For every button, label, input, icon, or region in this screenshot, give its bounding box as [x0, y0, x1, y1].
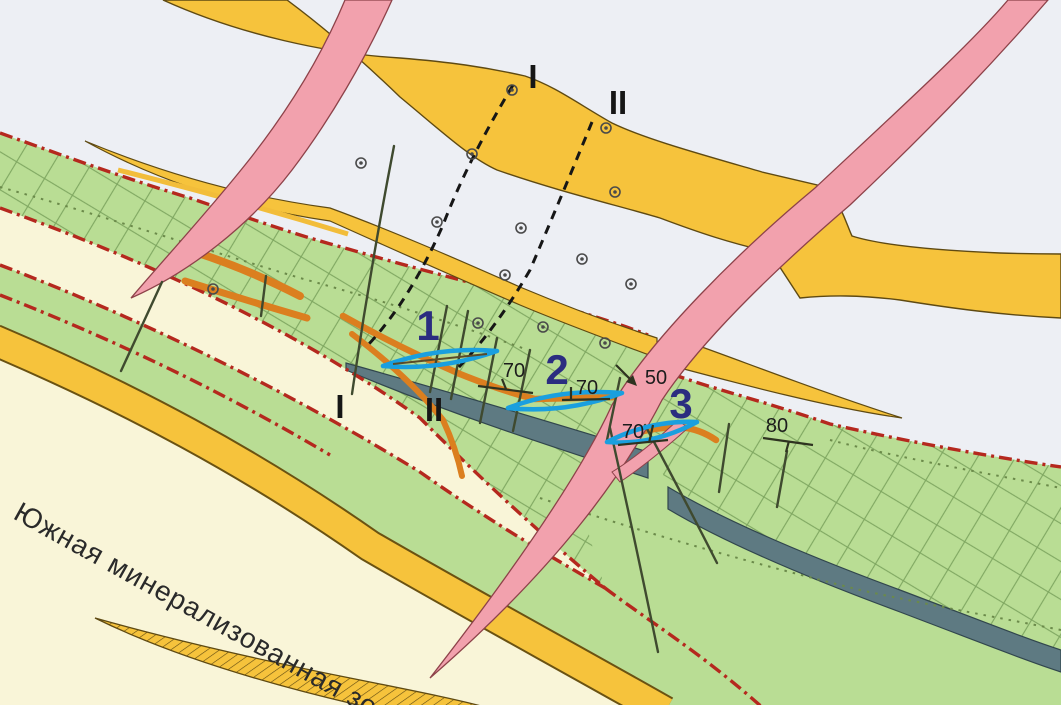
fault-dip-value: 50 [645, 367, 667, 389]
dip-value-1: 70 [503, 360, 525, 382]
ore-body-3-number: 3 [669, 380, 692, 427]
map-canvas[interactable]: I II I II 1 2 3 70 70 70 50 80 Южная мин… [0, 0, 1061, 705]
east-dip-value: 80 [766, 415, 788, 437]
section-1-label-top: I [528, 58, 537, 95]
ore-body-1-number: 1 [416, 302, 439, 349]
section-1-label-bottom: I [335, 388, 344, 425]
geological-map[interactable]: I II I II 1 2 3 70 70 70 50 80 Южная мин… [0, 0, 1061, 705]
dip-value-2: 70 [576, 377, 598, 399]
ore-body-2-number: 2 [545, 346, 568, 393]
dip-value-3: 70 [622, 421, 644, 443]
section-2-label-top: II [609, 84, 627, 121]
section-2-label-bottom: II [425, 391, 443, 428]
